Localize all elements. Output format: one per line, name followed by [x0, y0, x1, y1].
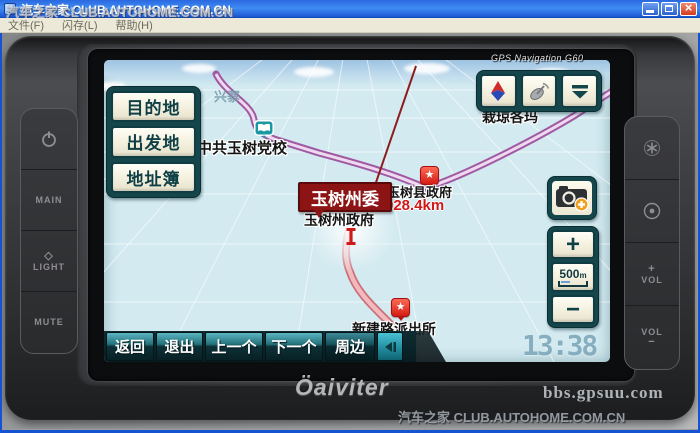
scale-value: 500m: [559, 269, 586, 281]
previous-button[interactable]: 上一个: [205, 332, 263, 361]
mute-button-label: MUTE: [34, 317, 64, 327]
map-tools-panel: [476, 70, 602, 112]
volume-down-label: VOL: [641, 327, 663, 337]
scale-unit: m: [579, 271, 586, 280]
map-scale-button[interactable]: 500m: [551, 262, 595, 292]
zoom-out-button[interactable]: −: [551, 295, 595, 324]
power-icon: [40, 130, 58, 148]
app-window: 汽车之家 CLUB.AUTOHOME.COM.CN 汽车之家 CLUB.AUTO…: [0, 0, 700, 433]
address-book-button[interactable]: 地址簿: [111, 162, 196, 193]
volume-up-button[interactable]: + VOL: [625, 243, 679, 306]
collapse-toolbar-button[interactable]: [377, 332, 403, 361]
collapse-panel-button[interactable]: [561, 74, 598, 108]
window-title: 汽车之家 CLUB.AUTOHOME.COM.CN: [21, 1, 231, 18]
watermark-bottom: 汽车之家 CLUB.AUTOHOME.COM.CN: [398, 407, 625, 426]
map-label-distance: 028.4km: [385, 197, 444, 214]
zoom-in-label: +: [566, 235, 580, 255]
address-book-label: 地址簿: [127, 165, 181, 190]
volume-down-button[interactable]: VOL −: [625, 306, 679, 368]
add-camera-button[interactable]: [547, 176, 597, 220]
ok-icon: [643, 202, 661, 220]
power-button[interactable]: [21, 109, 77, 170]
menu-help[interactable]: 帮助(H): [116, 17, 153, 33]
destination-label: 目的地: [127, 94, 181, 119]
menu-flash[interactable]: 闪存(L): [62, 17, 97, 33]
camera-button-face: [552, 181, 592, 215]
window-controls: [642, 2, 697, 16]
selected-poi-callout[interactable]: 玉树州委: [298, 182, 392, 212]
selected-poi-label: 玉树州委: [311, 185, 379, 210]
right-button-strip: + VOL VOL −: [624, 116, 680, 370]
nearby-button[interactable]: 周边: [325, 332, 375, 361]
device-photo: GPS Navigation G60 MAIN ◇ LIGHT MU: [0, 33, 700, 429]
chevron-down-icon: [570, 83, 590, 100]
asterisk-button[interactable]: [625, 117, 679, 180]
minimize-button[interactable]: [642, 2, 659, 16]
map-label-school: 中共玉树党校: [197, 137, 287, 158]
compass-button[interactable]: [480, 74, 517, 108]
menu-file[interactable]: 文件(F): [8, 17, 44, 33]
main-button[interactable]: MAIN: [21, 170, 77, 231]
minus-icon: −: [648, 337, 655, 348]
callout-tail: [314, 210, 324, 218]
back-label: 返回: [115, 336, 145, 357]
origin-label: 出发地: [127, 129, 181, 154]
watermark-gpsuu: bbs.gpsuu.com: [543, 383, 664, 403]
compass-icon: [488, 80, 508, 102]
gps-device: GPS Navigation G60 MAIN ◇ LIGHT MU: [5, 36, 695, 420]
zoom-out-label: −: [566, 300, 580, 320]
previous-label: 上一个: [211, 336, 256, 357]
school-poi-icon[interactable]: [254, 120, 274, 138]
light-button[interactable]: ◇ LIGHT: [21, 231, 77, 292]
zoom-panel: + 500m −: [547, 226, 599, 328]
menu-bar: 文件(F) 闪存(L) 帮助(H): [0, 18, 700, 33]
brand-logo: Öaiviter: [295, 374, 389, 401]
app-icon: [4, 3, 16, 15]
window-titlebar[interactable]: 汽车之家 CLUB.AUTOHOME.COM.CN 汽车之家 CLUB.AUTO…: [0, 0, 700, 18]
nearby-label: 周边: [335, 336, 365, 357]
asterisk-icon: [643, 139, 661, 157]
satellite-button[interactable]: [521, 74, 558, 108]
origin-button[interactable]: 出发地: [111, 126, 196, 157]
map-label-region: 兴寨: [214, 86, 240, 105]
close-button[interactable]: [680, 2, 697, 16]
collapse-left-icon: [383, 340, 398, 354]
left-button-strip: MAIN ◇ LIGHT MUTE: [20, 108, 78, 354]
main-button-label: MAIN: [36, 195, 63, 205]
bottom-toolbar: 返回 退出 上一个 下一个 周边: [104, 331, 416, 362]
exit-button[interactable]: 退出: [156, 332, 203, 361]
exit-label: 退出: [164, 336, 194, 357]
mute-button[interactable]: MUTE: [21, 292, 77, 352]
ok-button[interactable]: [625, 180, 679, 243]
next-button[interactable]: 下一个: [265, 332, 323, 361]
light-button-label: LIGHT: [33, 262, 65, 272]
back-button[interactable]: 返回: [106, 332, 154, 361]
window-border: [0, 33, 2, 433]
destination-button[interactable]: 目的地: [111, 91, 196, 122]
zoom-in-button[interactable]: +: [551, 230, 595, 259]
nav-panel: 目的地 出发地 地址簿: [106, 86, 201, 198]
scale-bar-icon: [558, 281, 588, 287]
star-poi-icon[interactable]: [391, 298, 410, 317]
camera-add-icon: [555, 185, 589, 212]
satellite-dish-icon: [527, 81, 551, 101]
light-icon: ◇: [44, 251, 53, 262]
model-label: GPS Navigation G60: [491, 53, 584, 63]
maximize-button[interactable]: [661, 2, 678, 16]
plus-icon: +: [648, 264, 655, 275]
volume-up-label: VOL: [641, 275, 663, 285]
device-screen: 兴寨 中共玉树党校 栽琼各玛 玉树县政府 028.4km 玉树州政府 新建路派出…: [104, 60, 610, 362]
next-label: 下一个: [271, 336, 316, 357]
clock: 13:38: [522, 329, 596, 362]
map-cursor-icon: [345, 228, 357, 245]
